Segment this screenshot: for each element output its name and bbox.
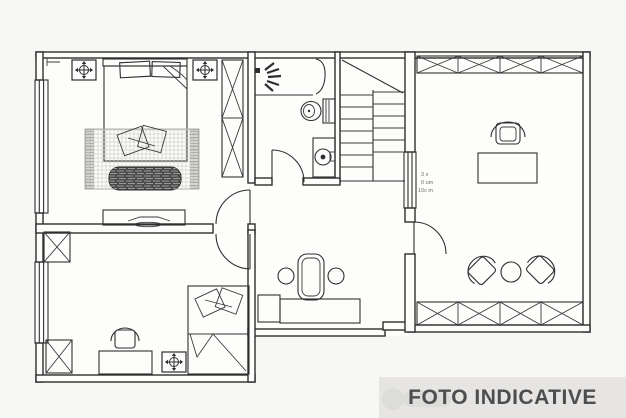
bench-icon: [109, 167, 181, 190]
ceiling-light-icon: [193, 60, 217, 80]
svg-text:10c m: 10c m: [418, 188, 433, 194]
ceiling-light-icon: [72, 60, 96, 80]
ceiling-light-icon: [162, 352, 186, 372]
foto-indicative-banner: FOTO INDICATIVE: [379, 377, 626, 418]
floor-plan-page: 3 x 0 um 10c m FOTO INDICATIVE: [0, 0, 626, 418]
svg-text:0 um: 0 um: [421, 180, 434, 186]
floor-plan-drawing: 3 x 0 um 10c m: [0, 0, 626, 418]
watermark-icon: [379, 385, 454, 413]
svg-text:3 x: 3 x: [421, 172, 429, 178]
